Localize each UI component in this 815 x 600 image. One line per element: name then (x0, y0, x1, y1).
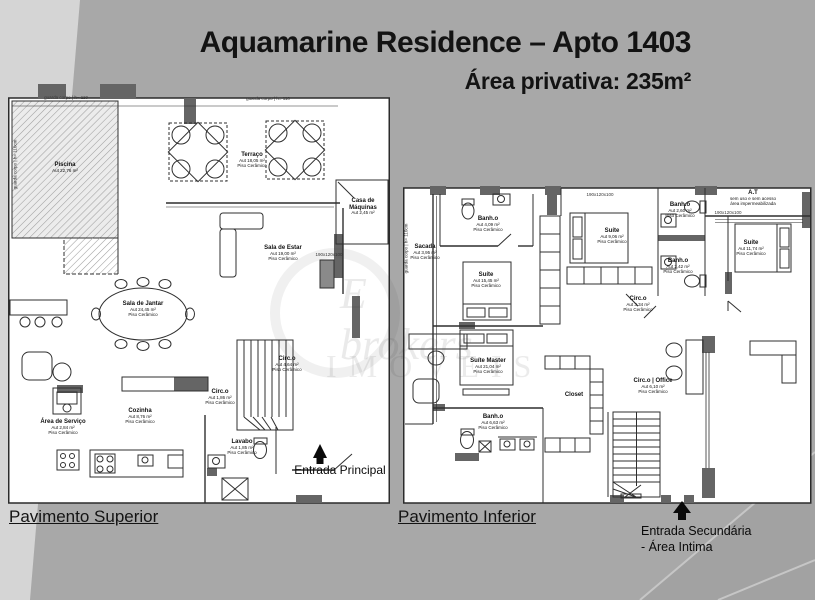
main-entrance-label: Entrada Principal (260, 463, 420, 477)
room-label-circ-escada: Circ.oAut 4,64 m²Piso Cerâmico (257, 356, 317, 372)
caption-pavimento-superior: Pavimento Superior (9, 507, 158, 527)
note-guardrail-side: guarda corpo | h= 110cm (13, 130, 18, 200)
note-guardrail-left: guarda corpo | h= 110 (26, 95, 106, 100)
room-label-suite-3: SuíteAut 11,74 m²Piso Cerâmico (723, 240, 779, 256)
room-label-banho-2: Banh.oAut 2,60 m²Piso Cerâmico (653, 202, 707, 218)
up-arrow-stem (678, 513, 686, 520)
room-detail-label: Piso Cerâmico (405, 256, 445, 261)
note-guardrail-right: guarda corpo | h= 110 (228, 96, 308, 101)
room-label-cozinha: CozinhaAut 8,76 m²Piso Cerâmico (105, 408, 175, 424)
room-detail-label: Piso Cerâmico (458, 284, 514, 289)
room-detail-label: Piso Cerâmico (651, 270, 705, 275)
room-label-banho-1: Banh.oAut 4,09 m²Piso Cerâmico (460, 216, 516, 232)
room-detail-label: Aut 2,45 m² (342, 211, 384, 216)
room-detail-label: Piso Cerâmico (653, 214, 707, 219)
room-label-terraco: TerraçoAut 18,05 m²Piso Cerâmico (217, 152, 287, 168)
room-label-sacada: SacadaAut 3,95 m²Piso Cerâmico (405, 244, 445, 260)
room-label-piscina: PiscinaAut 22,76 m² (33, 162, 97, 174)
room-detail-label: Aut 22,76 m² (33, 169, 97, 174)
note-dimension-top: 190x120x100 (575, 192, 625, 197)
room-detail-label: Piso Cerâmico (610, 308, 666, 313)
room-detail-label: Piso Cerâmico (584, 240, 640, 245)
room-detail-label: área impermeabilizada (723, 202, 783, 207)
room-detail-label: Piso Cerâmico (28, 431, 98, 436)
room-label-circ: Circ.oAut 3,34 m²Piso Cerâmico (610, 296, 666, 312)
room-label-banho-master: Banh.oAut 6,63 m²Piso Cerâmico (465, 414, 521, 430)
room-detail-label: Piso Cerâmico (622, 390, 684, 395)
secondary-entrance-line1: Entrada Secundária (641, 523, 761, 539)
secondary-entrance-line2: - Área Intima (641, 539, 761, 555)
room-label-circ-office: Circ.o | OfficeAut 6,10 m²Piso Cerâmico (622, 378, 684, 394)
up-arrow-icon (673, 501, 691, 513)
room-detail-label: Piso Cerâmico (217, 164, 287, 169)
floorplan-superior: PiscinaAut 22,76 m² TerraçoAut 18,05 m²P… (8, 82, 390, 505)
room-label-lavabo: LavaboAut 1,85 m²Piso Cerâmico (207, 439, 277, 455)
room-label-closet: Closet (549, 392, 599, 399)
room-detail-label: Piso Cerâmico (248, 257, 318, 262)
room-detail-label: Piso Cerâmico (105, 420, 175, 425)
page-title: Aquamarine Residence – Apto 1403 (200, 26, 691, 60)
note-guardrail-side: guarda corpo | h= 110cm (404, 219, 409, 279)
header: Aquamarine Residence – Apto 1403 Área pr… (200, 26, 691, 95)
room-label-sala-de-jantar: Sala de JantarAut 24,45 m²Piso Cerâmico (108, 301, 178, 317)
caption-pavimento-inferior: Pavimento Inferior (398, 507, 536, 527)
secondary-entrance-label: Entrada Secundária - Área Intima (641, 523, 761, 556)
room-label-circ: Circ.oAut 1,86 m²Piso Cerâmico (190, 389, 250, 405)
room-detail-label: Piso Cerâmico (458, 370, 518, 375)
floorplan-inferior: SacadaAut 3,95 m²Piso Cerâmico Banh.oAut… (403, 186, 813, 505)
note-dimension-at: 190x120x100 (703, 210, 753, 215)
room-label-banho-3: Banh.oAut 2,42 m²Piso Cerâmico (651, 258, 705, 274)
room-label-suite-2: SuíteAut 9,06 m²Piso Cerâmico (584, 228, 640, 244)
room-label-suite-1: SuíteAut 15,45 m²Piso Cerâmico (458, 272, 514, 288)
room-detail-label: Piso Cerâmico (190, 401, 250, 406)
room-label-at: A.Tsem uso e sem acessoárea impermeabili… (723, 190, 783, 206)
slide: Aquamarine Residence – Apto 1403 Área pr… (0, 0, 815, 600)
note-dimension: 190x120x100 (304, 252, 354, 257)
room-label-suite-master: Suíte MasterAut 21,04 m²Piso Cerâmico (458, 358, 518, 374)
floorplan-superior-drawing (8, 82, 390, 505)
room-detail-label: Piso Cerâmico (207, 451, 277, 456)
room-name-label: Closet (549, 392, 599, 399)
room-label-casa-de-maquinas: Casa de MáquinasAut 2,45 m² (342, 198, 384, 216)
page-subtitle: Área privativa: 235m² (200, 68, 691, 95)
room-detail-label: Piso Cerâmico (465, 426, 521, 431)
room-detail-label: Piso Cerâmico (460, 228, 516, 233)
room-label-area-de-servico: Área de ServiçoAut 2,84 m²Piso Cerâmico (28, 419, 98, 435)
room-detail-label: Piso Cerâmico (108, 313, 178, 318)
room-detail-label: Piso Cerâmico (257, 368, 317, 373)
tv-panel (320, 260, 334, 288)
room-detail-label: Piso Cerâmico (723, 252, 779, 257)
